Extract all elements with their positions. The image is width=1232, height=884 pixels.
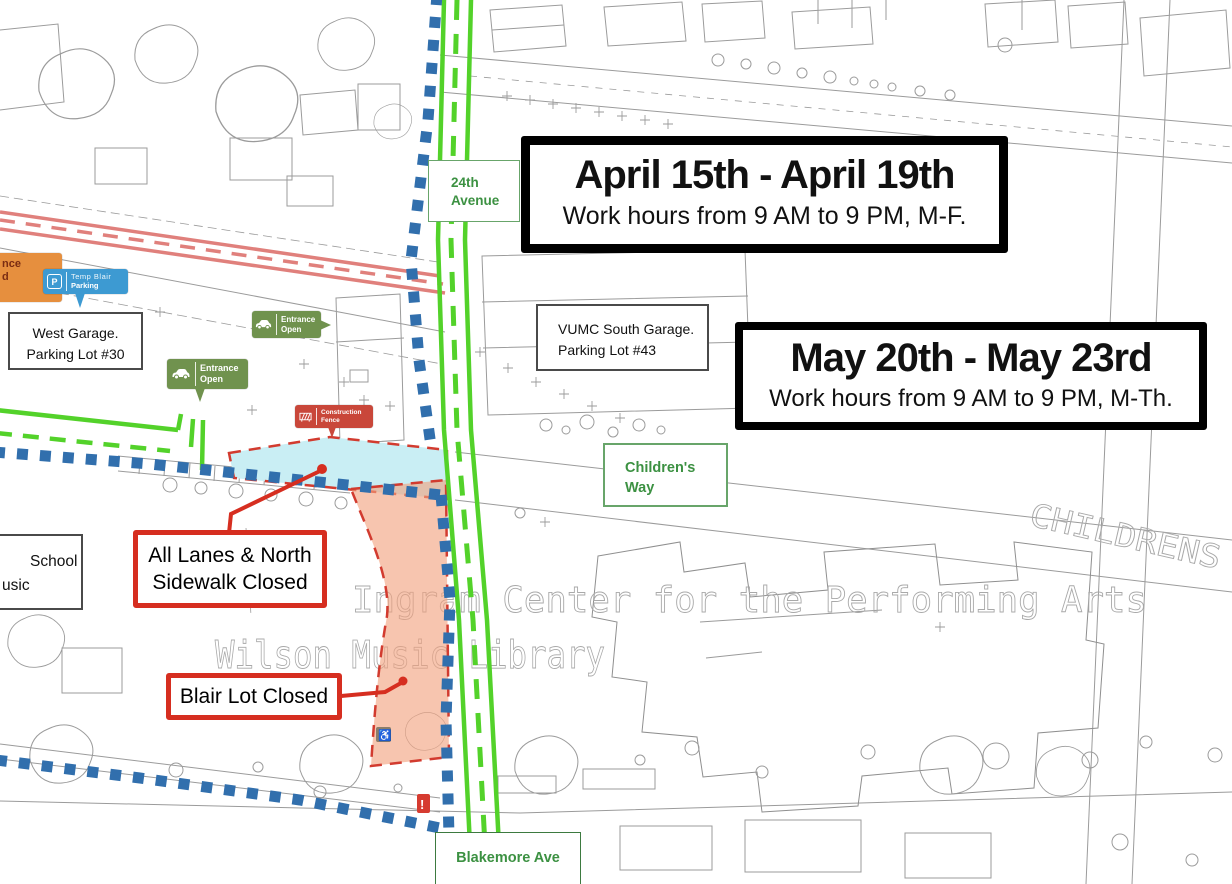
temp-blair-line1: Temp Blair	[71, 273, 111, 282]
entrance-open-south-tag: Entrance Open	[167, 359, 248, 389]
may-banner-title: May 20th - May 23rd	[743, 336, 1199, 381]
car-icon	[255, 319, 272, 330]
entrance-open-south-line1: Entrance	[200, 363, 239, 374]
all-lanes-line1: All Lanes & North	[138, 544, 322, 568]
entrance-open-north-line2: Open	[281, 325, 315, 334]
april-banner-subtitle: Work hours from 9 AM to 9 PM, M-F.	[530, 202, 999, 231]
accessible-parking-icon: ♿	[376, 727, 392, 742]
entrance-open-north-tag: Entrance Open	[252, 311, 321, 338]
blakemore-label: Blakemore Ave	[436, 850, 580, 866]
svg-text:!: !	[420, 797, 424, 812]
svg-text:♿: ♿	[378, 729, 392, 742]
school-line1: School	[0, 550, 81, 574]
alert-icon: !	[417, 794, 430, 813]
childrens-way-line2: Way	[625, 479, 726, 499]
parking-icon: P	[47, 274, 62, 289]
street-label-blakemore-ave: Blakemore Ave	[435, 832, 581, 884]
may-closure-banner: May 20th - May 23rd Work hours from 9 AM…	[735, 322, 1207, 430]
vumc-garage-label: VUMC South Garage. Parking Lot #43	[536, 304, 709, 371]
construction-fence-tail	[328, 427, 336, 438]
fence-icon	[299, 411, 312, 423]
vumc-garage-line1: VUMC South Garage.	[558, 319, 707, 340]
temp-blair-parking-tag: P Temp Blair Parking	[43, 269, 128, 294]
cad-building-lines	[0, 0, 1232, 884]
map-canvas: Ingram Center for the Performing Arts Wi…	[0, 0, 1232, 884]
entrance-open-north-line1: Entrance	[281, 315, 315, 324]
blair-lot-label: Blair Lot Closed	[171, 685, 337, 709]
blair-lot-closed-callout: Blair Lot Closed	[166, 673, 342, 720]
entrance-open-north-tail	[320, 320, 331, 330]
entrance-closed-line1: nce	[2, 258, 21, 271]
all-lanes-line2: Sidewalk Closed	[138, 571, 322, 595]
west-garage-line2: Parking Lot #30	[10, 344, 141, 365]
april-closure-banner: April 15th - April 19th Work hours from …	[521, 136, 1008, 253]
west-garage-label: West Garage. Parking Lot #30	[8, 312, 143, 370]
school-line2: usic	[0, 574, 81, 598]
24th-avenue-line2: Avenue	[451, 192, 519, 210]
temp-blair-tag-tail	[75, 293, 85, 308]
entrance-open-south-line2: Open	[200, 374, 239, 385]
entrance-open-south-tail	[195, 388, 205, 402]
may-banner-subtitle: Work hours from 9 AM to 9 PM, M-Th.	[743, 385, 1199, 413]
school-of-music-label-partial: School usic	[0, 534, 83, 610]
temp-blair-line2: Parking	[71, 282, 111, 291]
blair-lot-closure-area	[351, 480, 449, 766]
construction-fence-line1: Construction	[321, 409, 361, 417]
construction-fence-line2: Fence	[321, 417, 361, 425]
24th-avenue-line1: 24th	[451, 174, 519, 192]
vumc-garage-line2: Parking Lot #43	[558, 340, 707, 361]
childrens-way-line1: Children's	[625, 459, 726, 479]
april-banner-title: April 15th - April 19th	[530, 153, 999, 198]
childrens-street-label: CHILDRENS	[1026, 496, 1225, 577]
west-garage-line1: West Garage.	[10, 323, 141, 344]
all-lanes-closed-callout: All Lanes & North Sidewalk Closed	[133, 530, 327, 608]
construction-map: Ingram Center for the Performing Arts Wi…	[0, 0, 1232, 884]
entrance-closed-line2: d	[2, 271, 21, 284]
street-label-24th-avenue: 24th Avenue	[428, 160, 520, 222]
construction-fence-tag: Construction Fence	[295, 405, 373, 428]
street-label-childrens-way: Children's Way	[603, 443, 728, 507]
car-icon	[171, 368, 191, 380]
